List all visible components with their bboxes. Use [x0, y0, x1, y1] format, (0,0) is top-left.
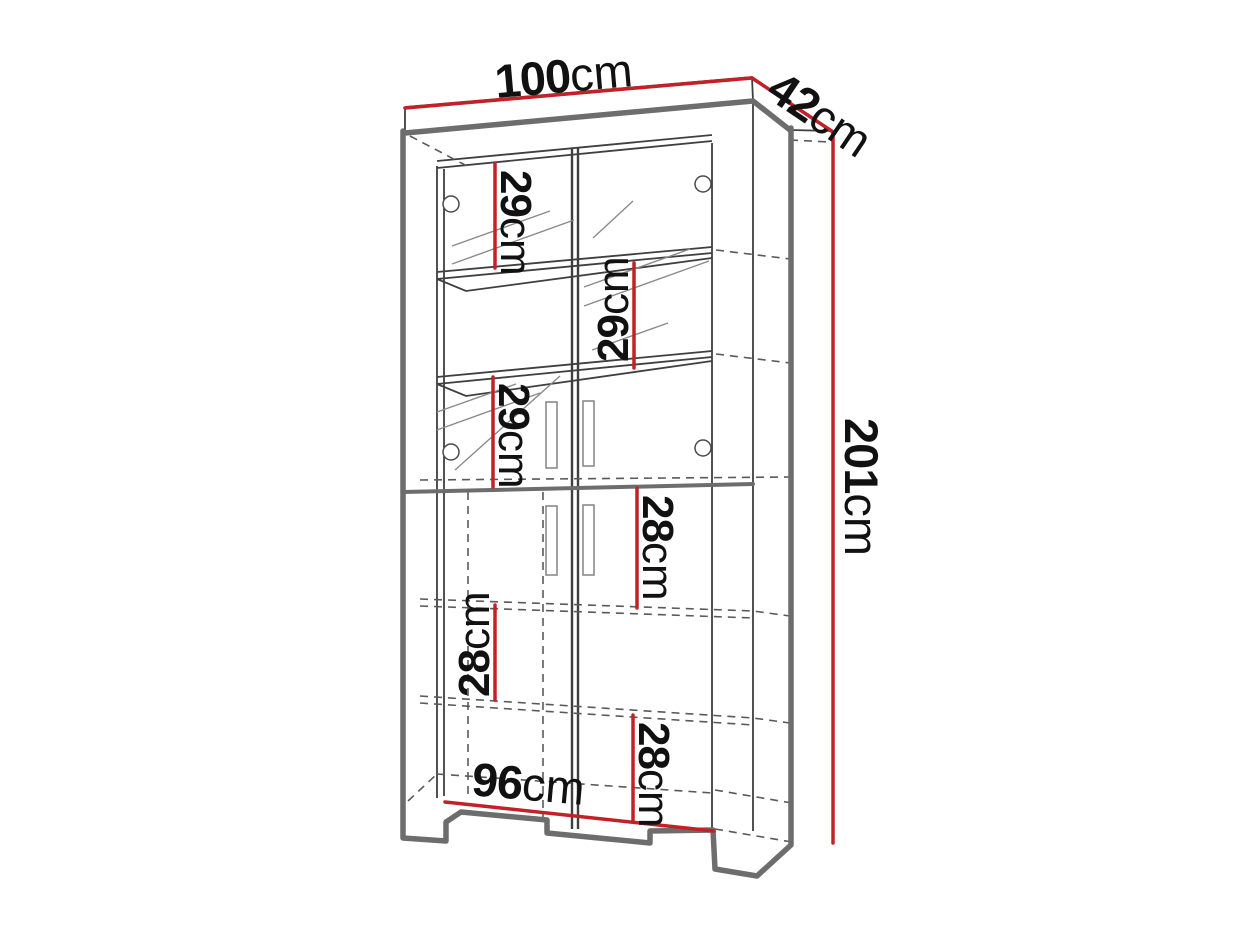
hidden-shelf5-top: [420, 696, 790, 723]
cabinet-diagram: 100cm 42cm 201cm 29cm 29cm 29cm 28cm 28c…: [0, 0, 1238, 929]
shelf1-top-edge: [437, 247, 712, 272]
dim-label-shelf-2: 29cm: [589, 256, 638, 362]
dim-value: 28: [450, 650, 499, 697]
handle-lower-left: [546, 506, 557, 575]
dim-unit: cm: [450, 591, 499, 650]
dimension-lines: [405, 78, 833, 843]
shelf2-top-edge: [437, 351, 712, 377]
dim-value: 29: [489, 383, 538, 430]
handle-upper-right: [583, 401, 594, 466]
dim-label-width-top: 100cm: [492, 43, 634, 108]
dim-unit: cm: [491, 217, 540, 276]
dim-unit: cm: [633, 542, 682, 601]
dim-value: 201: [835, 418, 888, 493]
dim-unit: cm: [589, 256, 638, 315]
dim-label-shelf-5: 28cm: [450, 591, 499, 697]
dim-unit: cm: [489, 430, 538, 489]
shelf2-underside: [437, 361, 712, 396]
dim-value: 96: [470, 752, 525, 809]
cabinet-diagram-canvas: 100cm 42cm 201cm 29cm 29cm 29cm 28cm 28c…: [0, 0, 1238, 929]
glass-mark: [593, 201, 633, 238]
ceiling-back-edge: [437, 135, 712, 161]
dim-label-height: 201cm: [835, 418, 888, 556]
hidden-floor-back-corner: [408, 774, 437, 801]
dim-unit: cm: [629, 769, 678, 828]
dim-label-shelf-1: 29cm: [491, 170, 540, 276]
dim-label-width-bottom: 96cm: [470, 752, 587, 815]
ceiling-front-edge: [437, 141, 712, 168]
carcass-thin-lines: [405, 77, 833, 831]
dim-unit: cm: [835, 493, 888, 556]
dim-label-shelf-3: 29cm: [489, 383, 538, 489]
dim-value: 29: [589, 315, 638, 362]
handle-lower-right: [583, 505, 594, 575]
hinge-icon: [443, 444, 459, 460]
dim-unit: cm: [520, 757, 587, 815]
top-fascia-bottom-edge: [405, 101, 753, 133]
handle-upper-left: [546, 402, 557, 468]
dim-value: 28: [629, 722, 678, 769]
dim-value: 28: [633, 495, 682, 542]
dim-label-depth: 42cm: [758, 60, 881, 167]
dim-label-shelf-6: 28cm: [629, 722, 678, 828]
dim-unit: cm: [568, 43, 635, 101]
dim-label-shelf-4: 28cm: [633, 495, 682, 601]
hidden-divider-top: [420, 477, 790, 480]
dim-value: 100: [492, 49, 572, 108]
thick-outline: [403, 101, 791, 876]
hinge-icon: [695, 176, 711, 192]
dim-value: 29: [491, 170, 540, 217]
hinge-icon: [695, 440, 711, 456]
hinge-icon: [443, 196, 459, 212]
carcass-outline-and-plinth: [403, 128, 791, 876]
